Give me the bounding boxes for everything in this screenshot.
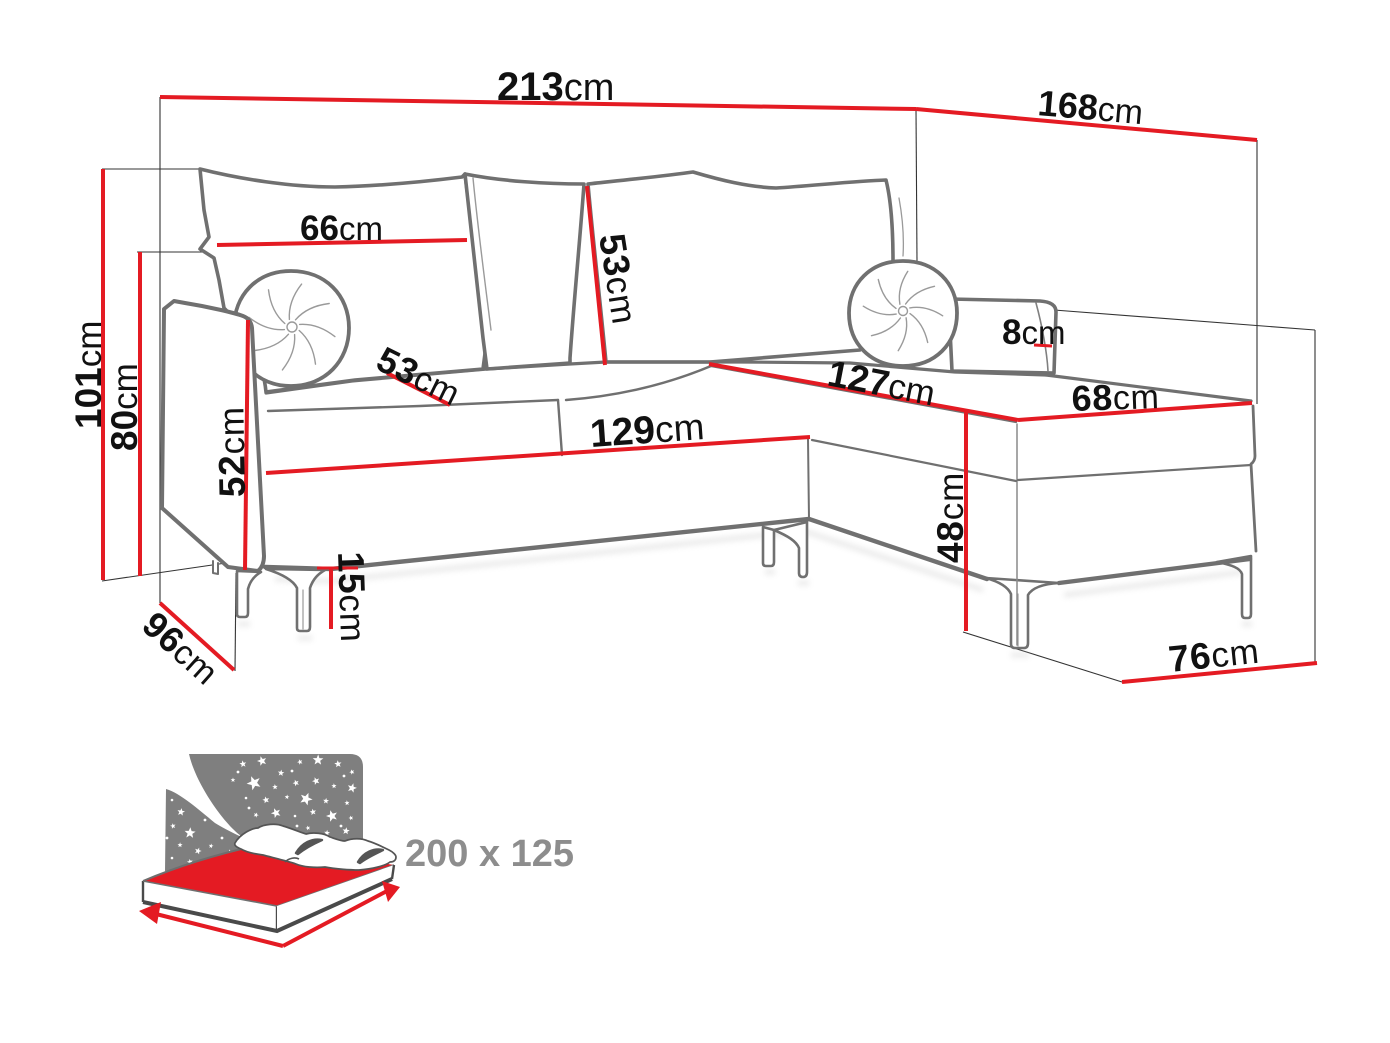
svg-text:52cm: 52cm xyxy=(210,406,253,498)
svg-text:213cm: 213cm xyxy=(497,65,614,109)
svg-text:200 x 125: 200 x 125 xyxy=(405,833,574,875)
svg-text:15cm: 15cm xyxy=(330,551,374,643)
svg-text:80cm: 80cm xyxy=(104,363,145,451)
svg-text:48cm: 48cm xyxy=(930,472,971,563)
svg-text:68cm: 68cm xyxy=(1071,375,1160,419)
svg-text:8cm: 8cm xyxy=(1002,313,1065,352)
svg-text:66cm: 66cm xyxy=(300,209,383,248)
svg-text:101cm: 101cm xyxy=(68,321,109,429)
